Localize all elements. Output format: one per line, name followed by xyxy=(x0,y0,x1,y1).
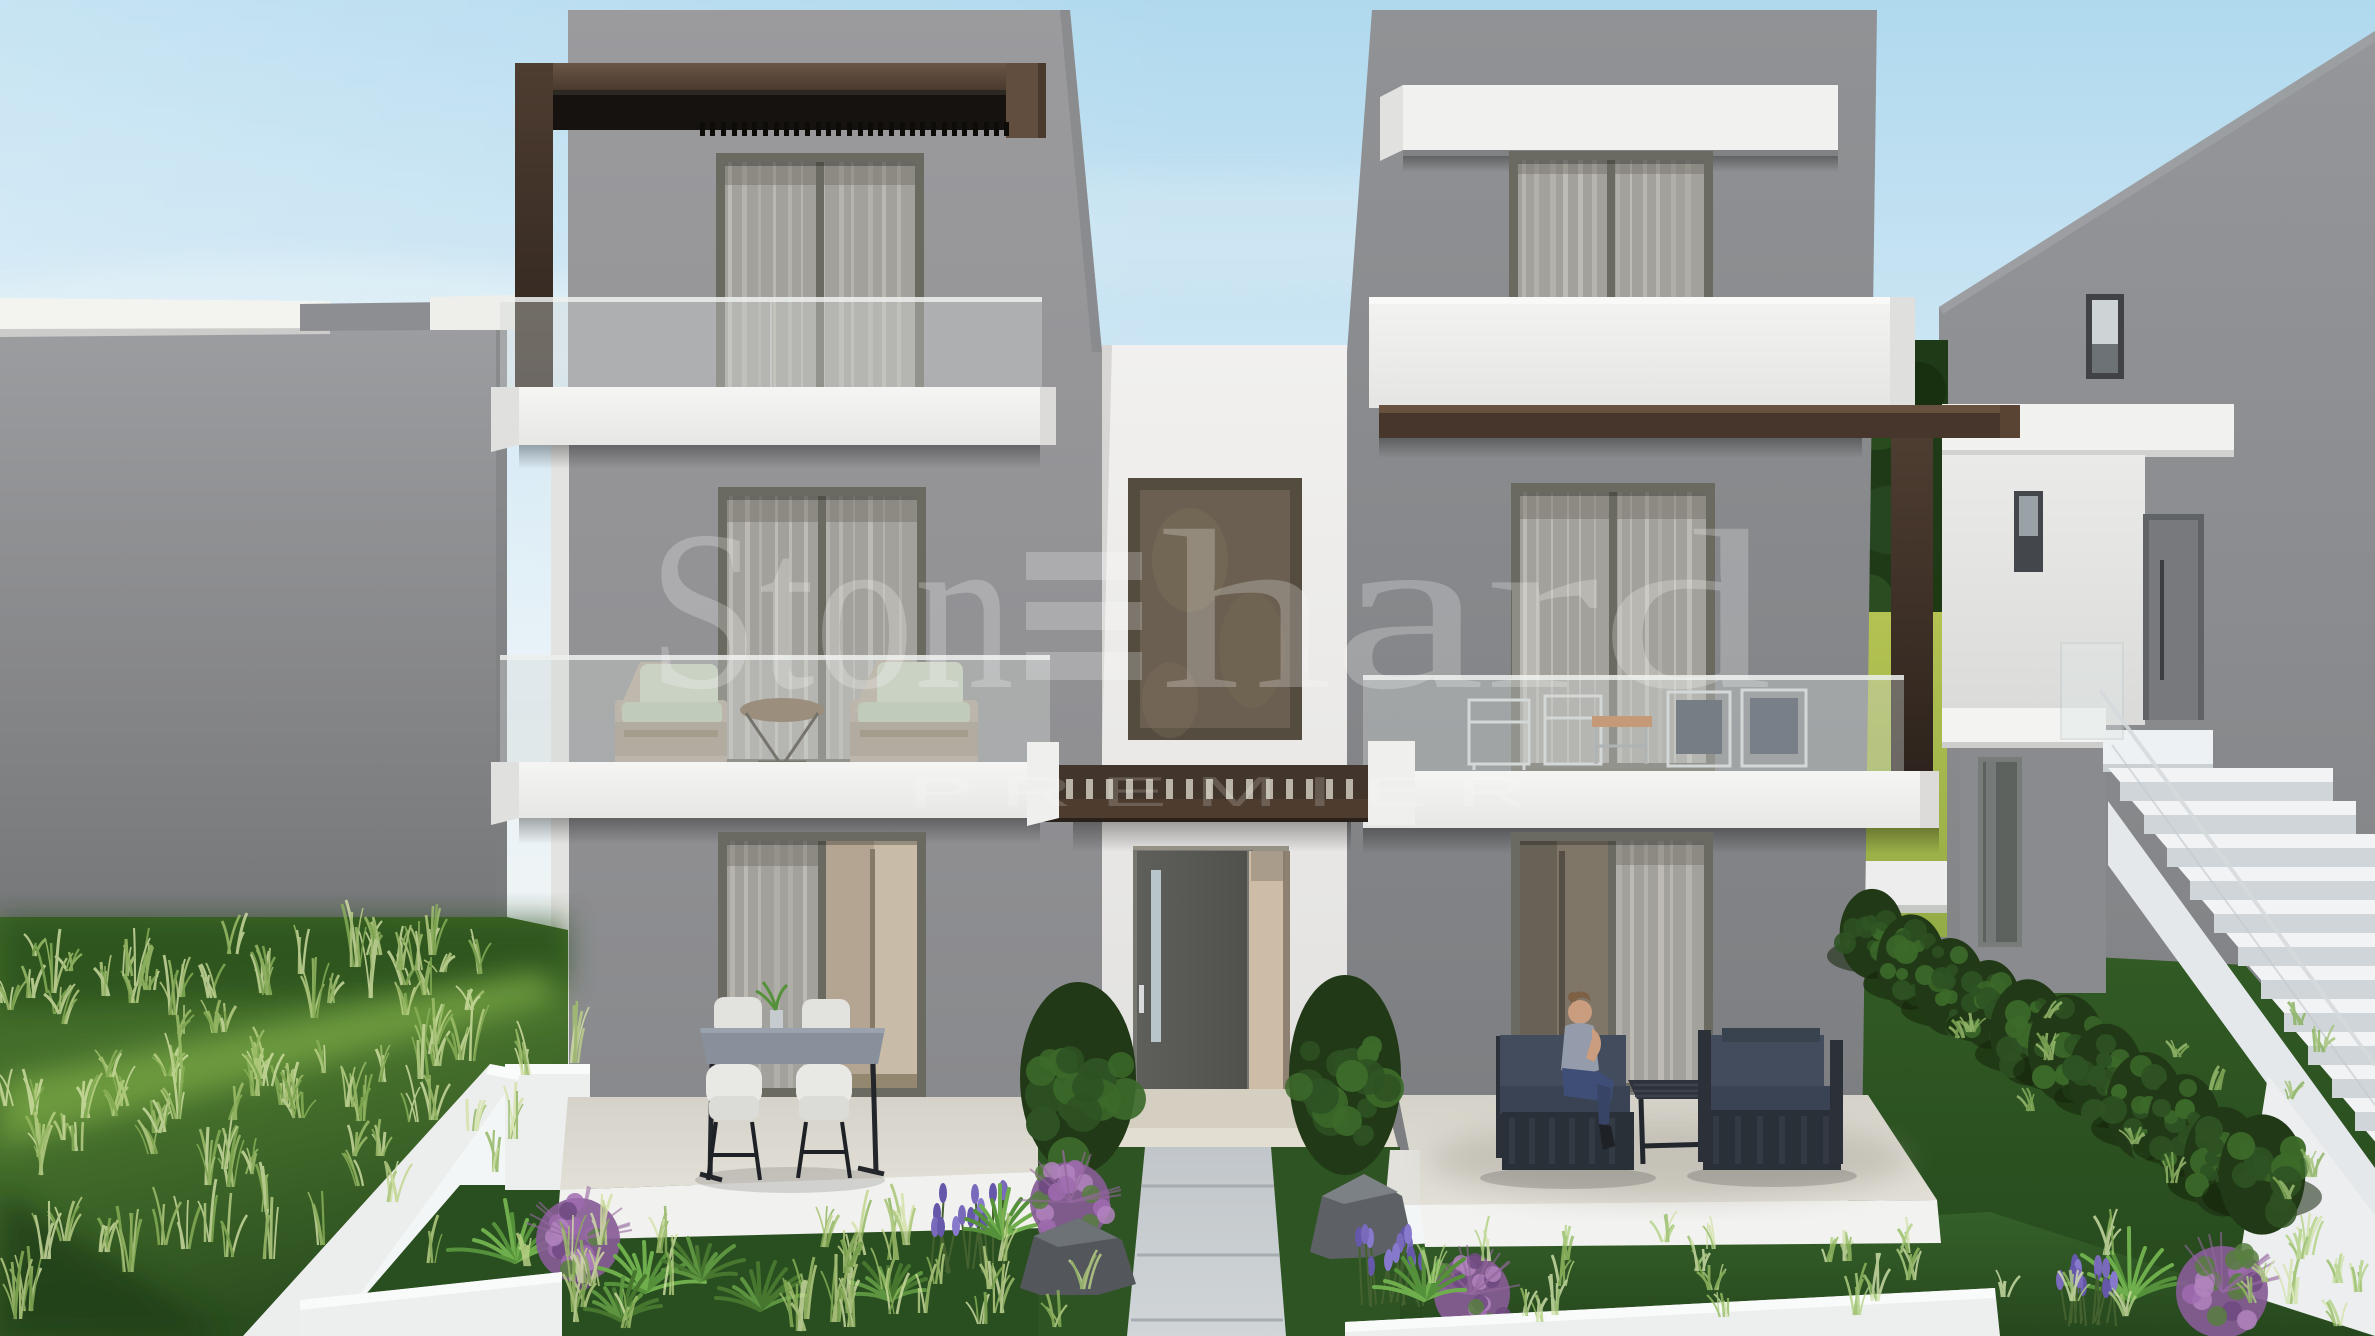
svg-text:hard: hard xyxy=(1160,485,1772,737)
svg-text:Ston: Ston xyxy=(648,485,1014,737)
svg-text:P R E M I E R: P R E M I E R xyxy=(908,768,1528,815)
